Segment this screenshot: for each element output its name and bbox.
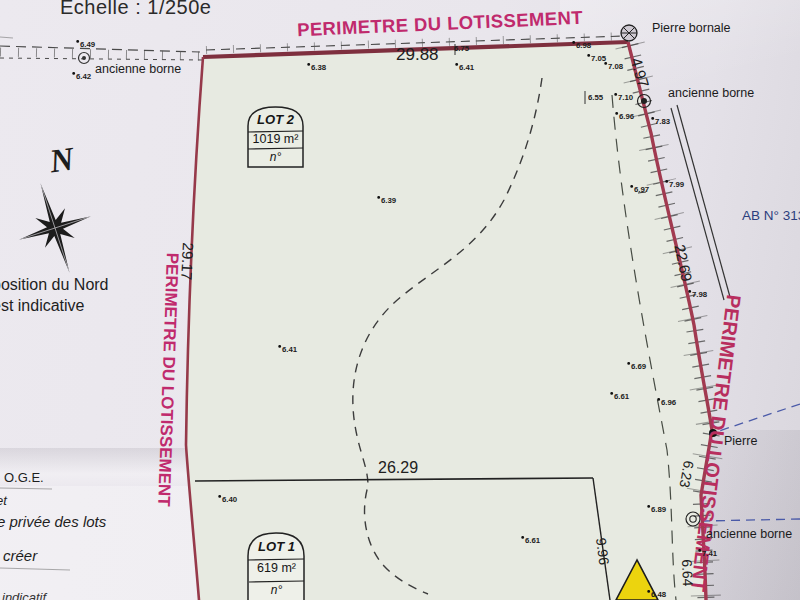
elevation-point: 6.61 xyxy=(525,536,540,545)
dim-lot1-right: 9.96 xyxy=(593,537,611,566)
elevation-point: 7.98 xyxy=(692,290,707,299)
elevation-point: 6.96 xyxy=(619,112,634,121)
boundary-dashed-left-approach xyxy=(0,46,200,52)
note-fragment-et: et xyxy=(0,494,7,508)
hatch-ticks-left xyxy=(0,52,200,56)
elevation-point: 7.99 xyxy=(669,180,684,189)
north-letter: N xyxy=(48,142,76,180)
indicatif-fragment: indicatif xyxy=(2,591,46,600)
elevation-point: 6.38 xyxy=(311,63,326,72)
north-note-line2: est indicative xyxy=(0,298,85,315)
elevation-point: 6.40 xyxy=(222,495,237,504)
elevation-point: 6.48 xyxy=(651,590,666,599)
borne-ancienne-left-icon xyxy=(79,53,90,64)
lot1-name: LOT 1 xyxy=(249,540,304,554)
private-road-note: e privée des lots xyxy=(0,514,106,530)
dim-left: 29.17 xyxy=(178,242,196,280)
ancienne-borne-left-label: ancienne borne xyxy=(95,63,181,76)
north-note-line1: position du Nord xyxy=(0,277,109,294)
lot2-number: n° xyxy=(248,151,303,164)
dim-lower-right-2: 6.64 xyxy=(679,559,695,587)
elevation-point: 6.41 xyxy=(459,63,474,72)
creer-note: créer xyxy=(3,548,37,564)
elevation-point: 6.75 xyxy=(454,44,469,53)
elevation-point: 6.98 xyxy=(576,41,591,50)
elevation-point: 6.55 xyxy=(588,93,603,102)
oge-label: O.G.E. xyxy=(4,471,44,485)
elevation-point: 6.39 xyxy=(381,196,396,205)
elevation-point: 6.41 xyxy=(282,345,297,354)
parcel-ref-label: AB N° 313 xyxy=(742,209,800,223)
pierre-label: Pierre xyxy=(724,435,757,448)
lot2-area: 1019 m² xyxy=(248,133,303,146)
scale-label: Echelle : 1/250e xyxy=(60,0,211,18)
elevation-point: 6.61 xyxy=(614,392,629,401)
elevation-point: 6.49 xyxy=(80,40,95,49)
ancienne-borne-right-label: ancienne borne xyxy=(668,87,754,100)
blue-dashed-leader-2 xyxy=(704,519,800,521)
elevation-point: 6.89 xyxy=(651,505,666,514)
boundary-dashed-left-approach-2 xyxy=(0,58,203,60)
elevation-point: 7.41 xyxy=(702,549,717,558)
compass-rose-icon xyxy=(4,172,105,285)
lot2-name: LOT 2 xyxy=(248,113,303,127)
elevation-point: 7.08 xyxy=(608,62,623,71)
elevation-point: 6.97 xyxy=(634,185,649,194)
dim-middle: 26.29 xyxy=(378,460,418,477)
ancienne-borne-bottom-label: ancienne borne xyxy=(706,528,792,541)
elevation-point: 6.96 xyxy=(661,398,676,407)
elevation-point: 7.10 xyxy=(618,93,633,102)
lot1-area: 619 m² xyxy=(249,562,304,575)
elevation-point: 6.42 xyxy=(76,72,91,81)
survey-plan-page: Echelle : 1/250e PERIMETRE DU LOTISSEMEN… xyxy=(0,0,800,600)
pierre-bornale-label: Pierre bornale xyxy=(652,22,731,35)
lot1-number: n° xyxy=(249,584,304,597)
elevation-point: 7.83 xyxy=(655,117,670,126)
elevation-point: 6.69 xyxy=(631,362,646,371)
dim-top: 29.88 xyxy=(396,46,439,64)
pierre-bornale-icon xyxy=(621,25,637,41)
